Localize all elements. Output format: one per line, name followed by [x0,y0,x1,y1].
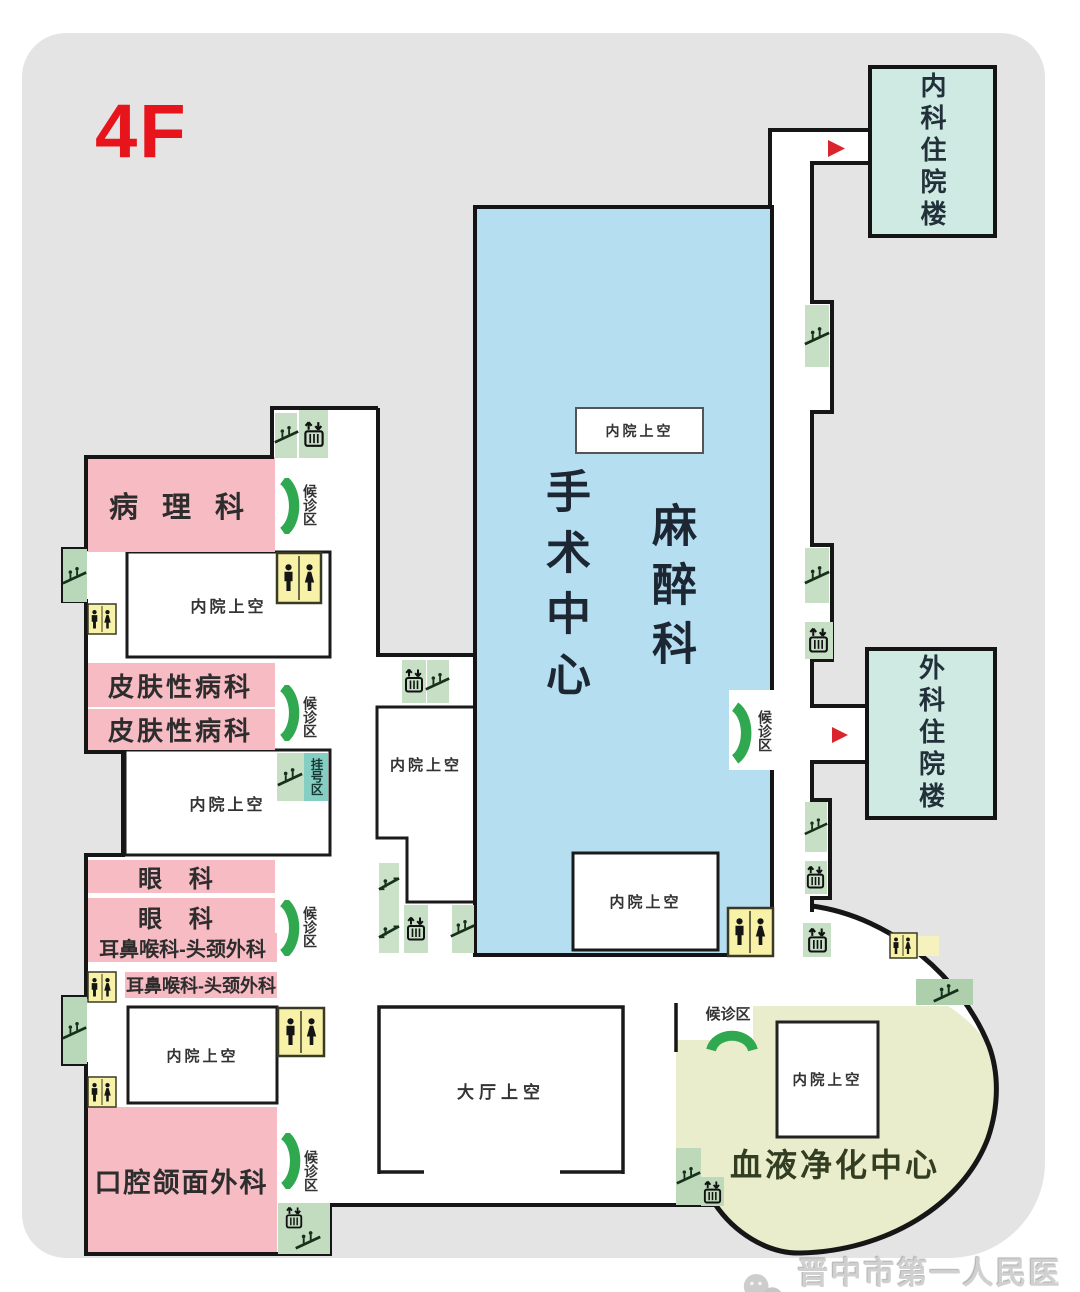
building-internal-medicine: 内科住院楼 [868,65,997,238]
waiting-area-label: 候诊区 [299,684,321,750]
room-ophthalmology-1-label: 眼 科 [138,859,223,894]
room-dermatology-1-label: 皮肤性病科 [108,667,253,704]
watermark: 晋中市第一人民医院 [740,1248,1080,1292]
room-dermatology-2: 皮肤性病科 [86,709,275,750]
room-pathology: 病 理 科 [86,457,275,552]
room-oral-surgery: 口腔颌面外科 [86,1107,277,1254]
waiting-area-label: 候诊区 [683,1002,773,1024]
courtyard-label-5: 内院上空 [377,707,475,822]
floor-plan-page: 病 理 科 皮肤性病科 皮肤性病科 眼 科 眼 科 耳鼻喉科-头颈外科 耳鼻喉科… [0,0,1080,1292]
waiting-area-label: 候诊区 [754,698,776,764]
room-ent-2-label: 耳鼻喉科-头颈外科 [126,972,276,998]
room-ent-1: 耳鼻喉科-头颈外科 [88,933,277,962]
courtyard-label-6: 内院上空 [573,853,718,950]
courtyard-label-4: 内院上空 [128,1007,277,1103]
building-internal-medicine-label: 内科住院楼 [914,72,951,232]
floor-right-corridor [770,130,868,915]
room-ophthalmology-1: 眼 科 [86,860,275,893]
room-surgery-anesthesia [473,205,774,957]
courtyard-label-7: 内院上空 [777,1022,878,1137]
room-dermatology-1: 皮肤性病科 [86,663,275,707]
room-ent-1-label: 耳鼻喉科-头颈外科 [99,933,266,962]
watermark-hospital-name: 晋中市第一人民医院 [797,1248,1080,1292]
courtyard-label-1: 内院上空 [576,408,703,453]
courtyard-label-3: 内院上空 [125,750,330,855]
room-ent-2: 耳鼻喉科-头颈外科 [125,972,277,998]
building-surgical: 外科住院楼 [865,647,997,820]
surgery-center-label: 手术中心 [532,468,597,712]
waiting-area-label: 候诊区 [299,472,321,538]
waiting-area-label: 候诊区 [300,1138,322,1204]
room-ophthalmology-2-label: 眼 科 [138,899,223,934]
waiting-area-label: 候诊区 [299,894,321,960]
room-pathology-label: 病 理 科 [109,484,252,526]
floor-label: 4F [95,88,188,175]
blood-purification-label: 血液净化中心 [690,1138,980,1188]
courtyard-label-2: 内院上空 [127,552,330,657]
room-ophthalmology-2: 眼 科 [86,898,275,935]
hall-void-label: 大厅上空 [379,1007,623,1174]
wechat-logo-icon [740,1271,789,1292]
building-surgical-label: 外科住院楼 [913,654,950,814]
room-oral-surgery-label: 口腔颌面外科 [95,1161,269,1200]
room-dermatology-2-label: 皮肤性病科 [108,711,253,748]
anesthesiology-label: 麻醉科 [638,502,703,679]
